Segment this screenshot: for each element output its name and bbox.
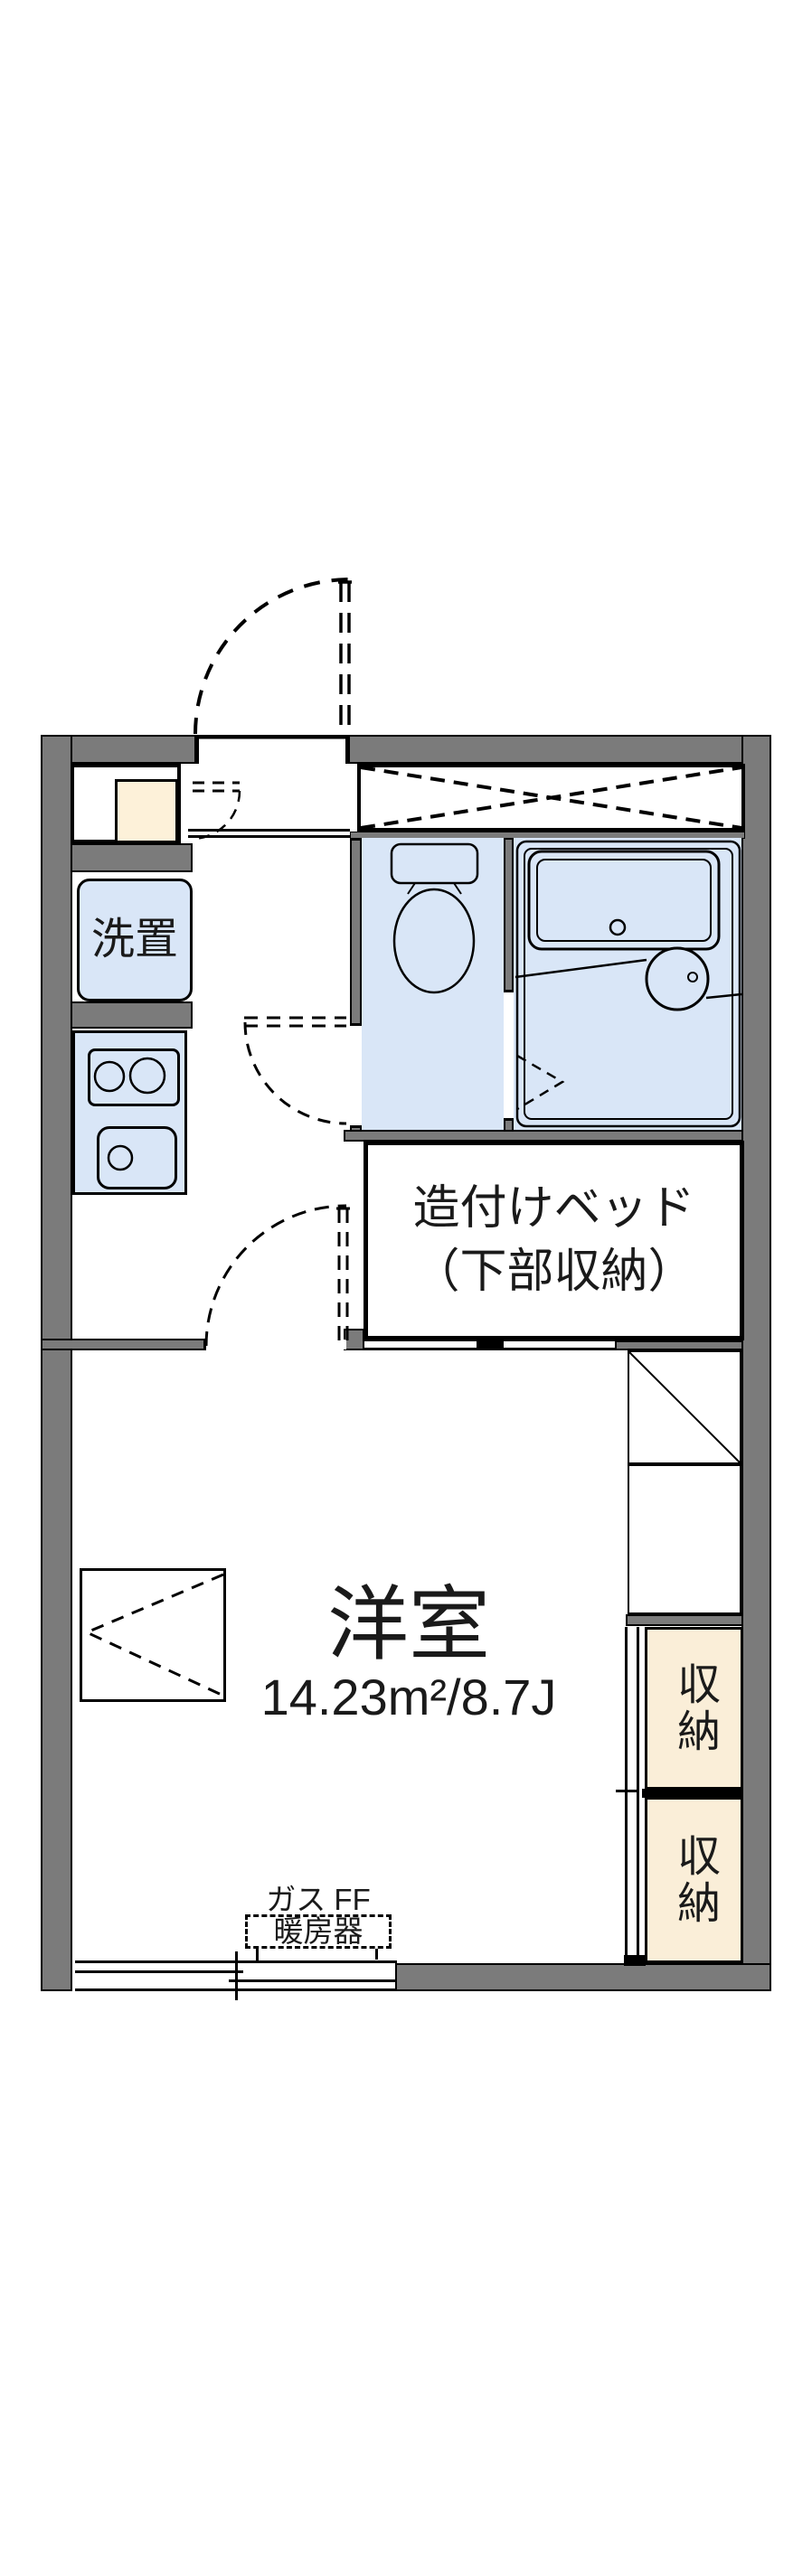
- entrance-closet: [357, 764, 745, 832]
- wall-toilet-bath-upper: [504, 838, 514, 992]
- storage-upper: 収納: [645, 1627, 743, 1790]
- washer-place-label: 洗置: [91, 915, 178, 964]
- kitchen-sink: [97, 1126, 177, 1189]
- toilet-room: [362, 838, 504, 1130]
- bed-opening-center-block: [477, 1339, 504, 1350]
- wall-washer-divider: [71, 1001, 193, 1029]
- wall-hall-stub: [344, 1329, 364, 1350]
- kitchen-stove: [88, 1048, 180, 1106]
- genkan-step-line-upper: [188, 829, 350, 832]
- wall-toilet-left-upper: [350, 839, 362, 1026]
- wall-hall-room-left: [41, 1339, 206, 1350]
- closet-diagonal-box: [628, 1350, 741, 1464]
- wall-bottom: [395, 1963, 771, 1991]
- bathroom: [514, 838, 741, 1130]
- gas-heater-box: 暖房器: [245, 1914, 392, 1949]
- entrance-lintel-line: [194, 735, 350, 738]
- western-room-name: 洋室: [217, 1579, 600, 1673]
- closet-plain-box: [628, 1464, 741, 1614]
- gas-heater-label-line2: 暖房器: [274, 1914, 364, 1949]
- entrance-jamb-left: [194, 735, 199, 764]
- window-center-tick: [235, 1951, 238, 2000]
- wall-right: [741, 735, 771, 1991]
- storage-lower: 収納: [645, 1797, 743, 1963]
- built-in-bed-label-line2: （下部収納）: [412, 1246, 694, 1300]
- built-in-bed-room: 造付けベッド （下部収納）: [364, 1141, 744, 1340]
- bath-door-opening: [504, 992, 514, 1118]
- wall-bed-bottom-right: [615, 1340, 743, 1350]
- toilet-door-opening: [350, 1026, 362, 1125]
- storage-slide-rail-outer: [625, 1627, 628, 1963]
- water-heater-unit: [115, 779, 178, 843]
- genkan-step-line-lower: [188, 835, 350, 838]
- toilet-door-jamb-top: [350, 1023, 362, 1026]
- entrance-jamb-right: [345, 735, 350, 764]
- gas-heater-tick-left: [256, 1949, 259, 1961]
- window-sash-right: [229, 1979, 397, 1982]
- storage-slide-rail-inner: [637, 1627, 639, 1963]
- entrance-opening: [199, 739, 345, 764]
- hall-room-door-opening: [206, 1340, 346, 1349]
- window-sash-left: [75, 1970, 243, 1973]
- built-in-bed-label-line1: 造付けベッド: [412, 1182, 694, 1236]
- fold-table: [80, 1568, 226, 1702]
- bath-door-jamb-top: [504, 990, 514, 992]
- gas-heater-tick-right: [375, 1949, 378, 1960]
- wall-heater-divider: [71, 843, 193, 872]
- hall-room-door-jamb-left: [203, 1339, 206, 1350]
- storage-slide-tick: [616, 1790, 639, 1792]
- storage-lower-label: 収納: [669, 1833, 719, 1927]
- toilet-door-jamb-bottom: [350, 1125, 362, 1128]
- gas-heater-label-line1: ガス FF: [253, 1883, 383, 1917]
- room-door-swing: [206, 1206, 350, 1346]
- storage-upper-label: 収納: [669, 1661, 719, 1755]
- washer-place: 洗置: [77, 879, 193, 1001]
- wall-top: [41, 735, 771, 764]
- western-room-area: 14.23m²/8.7J: [217, 1669, 600, 1726]
- toilet-door-swing: [244, 1018, 346, 1123]
- wall-left: [41, 735, 72, 1991]
- entrance-door-swing: [195, 579, 352, 734]
- wall-storage-top-stub: [626, 1614, 743, 1626]
- floor-plan-canvas: 洗置 造付けベッド （下部収納） 収納 収納 ガス FF 暖房器 洋室 14.2…: [0, 0, 812, 2576]
- bath-door-jamb-bottom: [504, 1118, 514, 1121]
